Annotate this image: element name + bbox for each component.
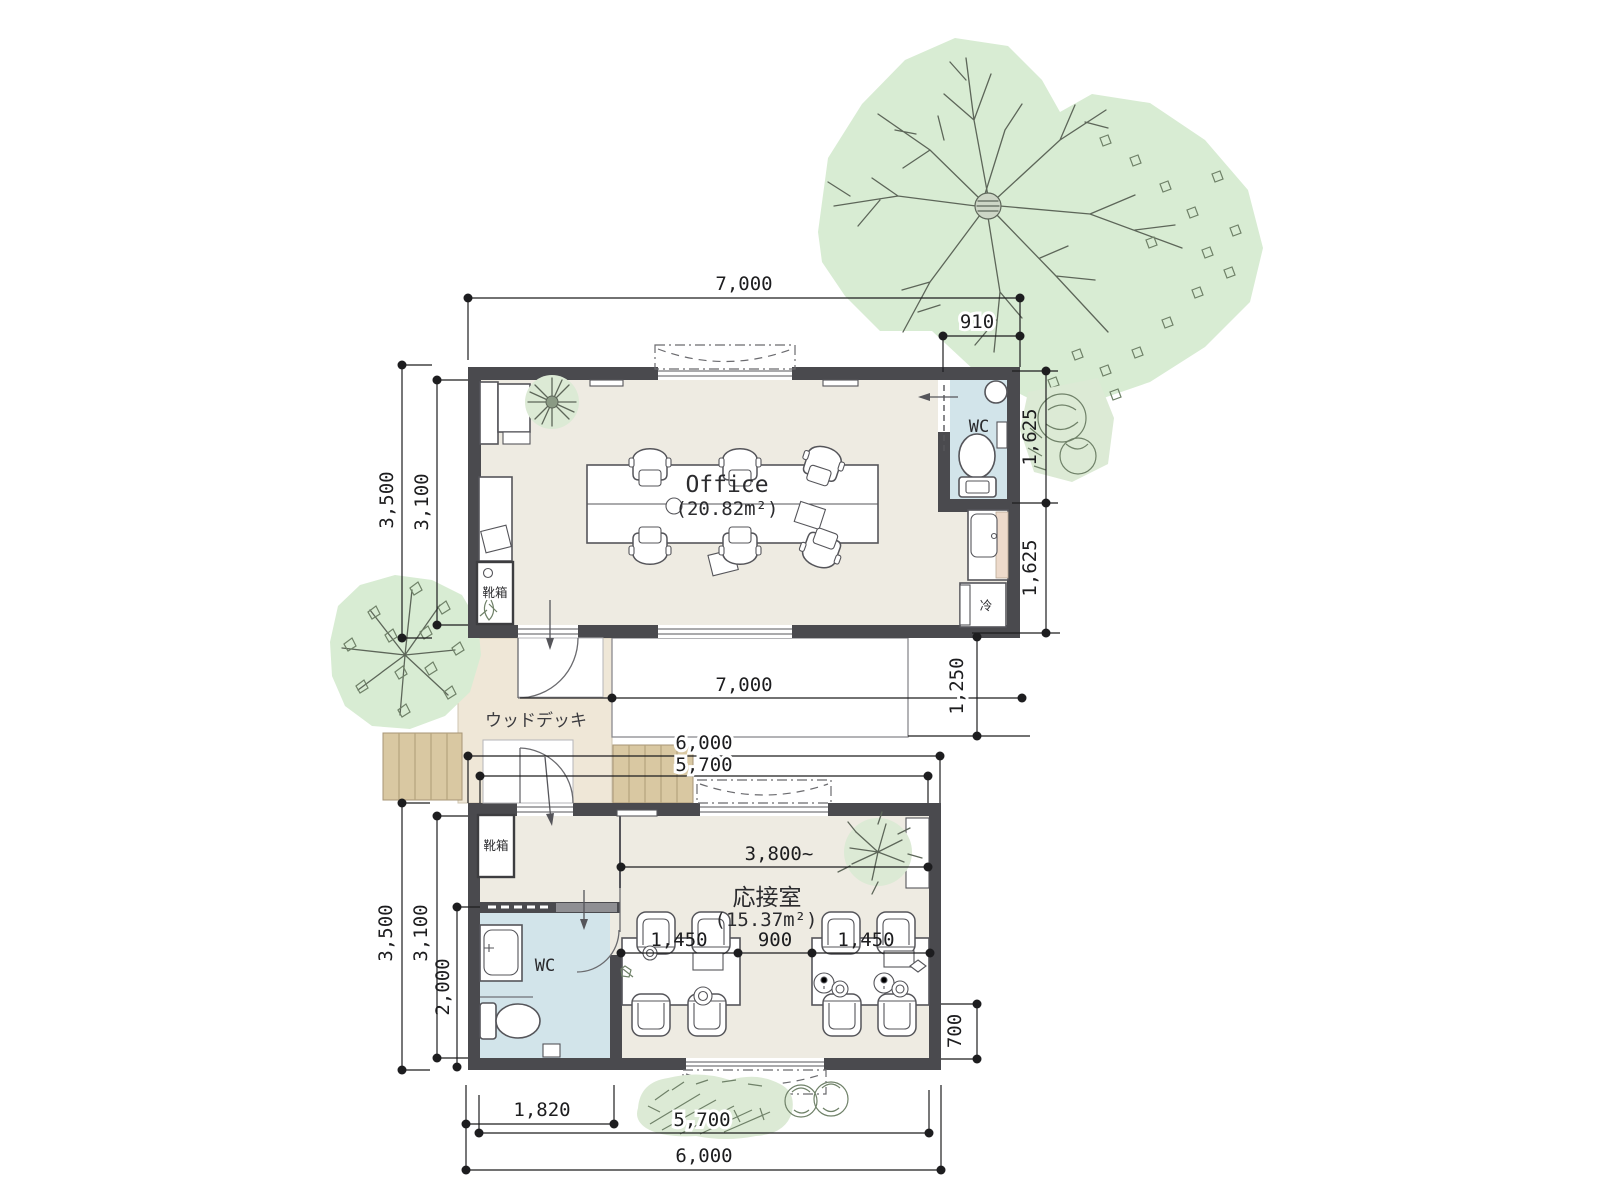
wc-basin-icon — [985, 381, 1007, 403]
dim-reception-depth-inner: 3,100 — [410, 812, 468, 1063]
reception-shoebox: 靴箱 — [478, 815, 514, 877]
office-window-bottom — [658, 625, 792, 638]
toilet-icon-office — [959, 434, 996, 497]
office-sill-right — [823, 380, 858, 386]
svg-text:3,100: 3,100 — [410, 904, 432, 961]
reception-area-label: (15.37m²) — [715, 909, 818, 931]
svg-text:1,250: 1,250 — [946, 657, 968, 714]
dim-bottom-1820: 1,820 — [462, 1085, 619, 1129]
office-room-label: Office — [685, 472, 768, 498]
reception-awning-top — [697, 780, 831, 803]
svg-text:900: 900 — [758, 929, 792, 951]
svg-text:7,000: 7,000 — [715, 674, 772, 696]
svg-text:1,450: 1,450 — [650, 929, 707, 951]
reception-shoebox-label: 靴箱 — [483, 838, 508, 853]
office-wc-label: WC — [969, 417, 989, 437]
potted-plant-icon-office — [525, 375, 579, 429]
office-counter-sink — [968, 510, 1008, 580]
office-area-label: (20.82m²) — [676, 498, 779, 520]
svg-text:700: 700 — [944, 1014, 966, 1048]
bottom-shrubs — [637, 1074, 848, 1139]
reception-entry-opening — [517, 803, 573, 816]
svg-text:1,450: 1,450 — [837, 929, 894, 951]
reception-room-label: 応接室 — [733, 885, 802, 911]
svg-text:6,000: 6,000 — [675, 1145, 732, 1167]
svg-text:1,625: 1,625 — [1019, 539, 1041, 596]
reception-wc-label: WC — [535, 956, 555, 976]
reception-sill — [617, 810, 657, 816]
svg-text:5,700: 5,700 — [673, 1109, 730, 1131]
office-shoebox: 靴箱 — [477, 562, 513, 624]
svg-text:3,800~: 3,800~ — [745, 843, 814, 865]
reception-divider-wall — [610, 955, 622, 1058]
svg-text:7,000: 7,000 — [715, 273, 772, 295]
office-shoebox-label: 靴箱 — [482, 585, 507, 600]
toilet-icon-reception — [480, 1003, 540, 1039]
refrigerator-icon: 冷 — [960, 583, 1006, 627]
svg-text:3,500: 3,500 — [375, 904, 397, 961]
reception-wc-door-pocket — [556, 903, 617, 912]
reception-window-bottom — [686, 1058, 824, 1070]
office-entry-opening — [518, 625, 578, 638]
svg-text:910: 910 — [960, 311, 994, 333]
reception-building: WC 靴箱 — [468, 780, 941, 1070]
svg-text:3,500: 3,500 — [376, 471, 398, 528]
svg-text:6,000: 6,000 — [675, 732, 732, 754]
office-awning-top — [655, 345, 795, 369]
armchair — [632, 994, 670, 1036]
dim-deck-depth: 1,250 — [908, 633, 1030, 741]
deck-label: ウッドデッキ — [485, 710, 587, 731]
svg-text:1,625: 1,625 — [1019, 408, 1041, 465]
dim-right-700: 700 — [941, 1000, 982, 1064]
reception-wc-sink — [480, 925, 522, 981]
fridge-label: 冷 — [980, 598, 993, 613]
outdoor-steps-left — [383, 733, 462, 800]
large-tree — [818, 38, 1263, 402]
reception-window-top — [700, 803, 828, 816]
svg-text:2,000: 2,000 — [432, 958, 454, 1015]
office-shelf-topleft — [480, 382, 530, 444]
floor-plan-drawing: ウッドデッキ WC — [0, 0, 1600, 1200]
armchair — [878, 994, 916, 1036]
svg-text:5,700: 5,700 — [675, 754, 732, 776]
dim-tables: 1,450 900 1,450 — [617, 929, 935, 958]
armchair — [823, 994, 861, 1036]
svg-text:3,100: 3,100 — [411, 473, 433, 530]
office-desk-left — [479, 477, 512, 561]
floor-plan-canvas: ウッドデッキ WC — [0, 0, 1600, 1200]
wc-bin — [543, 1044, 560, 1057]
office-building: WC — [468, 345, 1020, 638]
wc-shelf — [997, 422, 1007, 448]
svg-text:1,820: 1,820 — [513, 1099, 570, 1121]
office-sill-left — [590, 380, 623, 386]
